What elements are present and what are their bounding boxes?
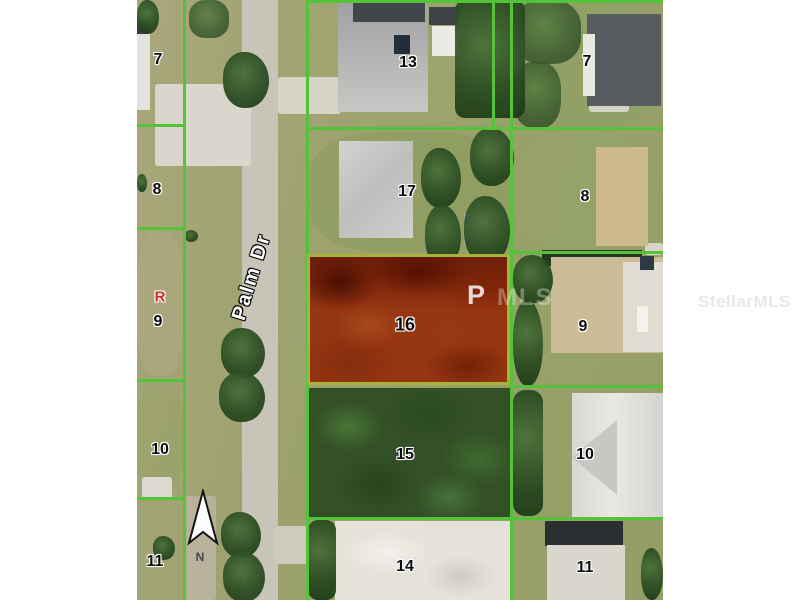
parcel-label: 8	[153, 181, 162, 199]
parcel-line	[137, 497, 185, 500]
cleared-sand-parcel-14	[335, 521, 510, 600]
tree	[137, 0, 159, 34]
watermark-stellarmls: StellarMLS	[698, 292, 791, 312]
palm-tree	[221, 328, 265, 378]
parcel-label: 10	[151, 441, 169, 459]
parcel-line	[306, 517, 663, 520]
palm-tree	[223, 552, 265, 600]
parcel-label: 7	[583, 53, 592, 71]
parcel-line	[510, 251, 663, 254]
shed	[432, 26, 457, 56]
building-roof-dark	[587, 14, 661, 106]
tree-cluster	[421, 148, 461, 208]
parcel-label: 9	[154, 313, 163, 331]
parcel-line	[492, 0, 495, 128]
car	[637, 306, 648, 332]
tree-cluster	[308, 520, 336, 600]
parcel-label: 14	[396, 558, 414, 576]
parcel-line	[306, 127, 663, 130]
tree-cluster	[641, 548, 663, 600]
parcel-label: 13	[399, 54, 417, 72]
tree	[137, 174, 147, 192]
watermark-mls-faint: MLS	[497, 284, 554, 312]
parcel-label-highlighted: 16	[395, 315, 415, 336]
marker-r: R	[155, 289, 166, 306]
driveway	[278, 77, 341, 114]
tree	[185, 230, 198, 242]
tree-cluster	[513, 390, 543, 516]
parcel-label: 11	[147, 553, 164, 571]
tree-cluster	[470, 128, 514, 186]
grass-patch	[279, 250, 305, 390]
parcel-line	[137, 379, 185, 382]
aerial-photo: 7 8 9 10 11 R 13 17 16 15 14 7 8 9 10 11…	[137, 0, 663, 600]
car-dark	[640, 256, 654, 270]
pool	[394, 35, 410, 54]
building-partial	[137, 30, 150, 110]
parcel-line	[513, 385, 663, 388]
building-roof-dark	[545, 521, 623, 546]
parcel-line	[137, 227, 185, 230]
mls-map-screenshot: 7 8 9 10 11 R 13 17 16 15 14 7 8 9 10 11…	[0, 0, 800, 600]
parcel-line	[306, 0, 663, 3]
parcel-label: 8	[581, 188, 590, 206]
parcel-line	[137, 124, 185, 127]
building-roof-tan	[596, 147, 648, 246]
parcel-label: 17	[398, 183, 416, 201]
parcel-label: 11	[577, 559, 594, 577]
parcel-label: 9	[579, 318, 588, 336]
building-roof-dark	[353, 0, 425, 22]
parcel-label: 15	[396, 446, 414, 464]
north-arrow-icon	[186, 489, 222, 549]
watermark-p: P	[467, 280, 485, 311]
pavement-patch	[142, 477, 172, 499]
driveway	[275, 526, 309, 564]
tree-cluster	[513, 300, 543, 386]
hedge-strip	[455, 0, 525, 118]
palm-tree	[223, 52, 269, 108]
tree-cluster	[189, 0, 229, 38]
parcel-label: 10	[576, 446, 594, 464]
palm-tree	[219, 372, 265, 422]
parcel-label: 7	[154, 51, 163, 69]
north-label: N	[196, 550, 205, 564]
